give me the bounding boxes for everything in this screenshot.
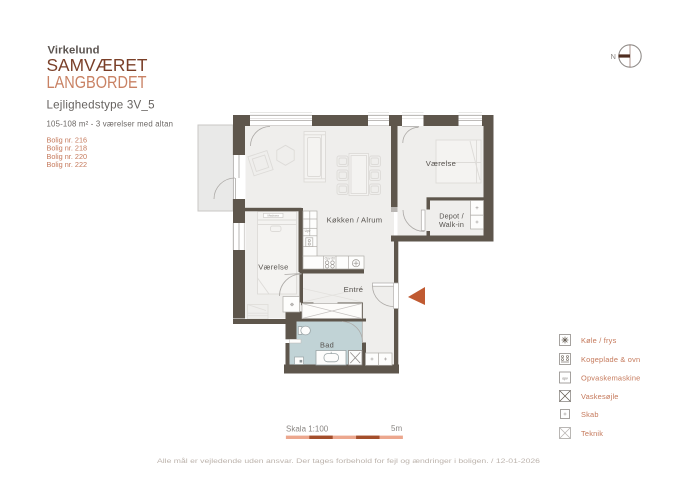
svg-text:Værelse: Værelse (258, 263, 288, 272)
svg-text:105-108 m² - 3 værelser med al: 105-108 m² - 3 værelser med altan (47, 120, 174, 129)
svg-text:Upv: Upv (305, 229, 311, 233)
svg-text:Alle mål er vejledende uden an: Alle mål er vejledende uden ansvar. Der … (157, 457, 540, 465)
svg-text:Madrass: Madrass (267, 214, 279, 218)
svg-text:Entré: Entré (344, 285, 364, 294)
svg-text:Køle / frys: Køle / frys (581, 336, 617, 345)
svg-text:Opvaskemaskine: Opvaskemaskine (581, 373, 641, 382)
svg-text:Skab: Skab (581, 410, 599, 419)
svg-text:Værelse: Værelse (426, 159, 456, 168)
svg-text:Bolig nr. 222: Bolig nr. 222 (47, 160, 88, 169)
svg-text:Skala 1:100: Skala 1:100 (286, 425, 329, 434)
svg-text:Walk-in: Walk-in (439, 220, 464, 229)
svg-text:opv: opv (562, 377, 568, 381)
svg-text:Kogeplade & ovn: Kogeplade & ovn (581, 355, 640, 364)
svg-text:5m: 5m (391, 424, 402, 433)
svg-text:Køkken / Alrum: Køkken / Alrum (327, 216, 383, 225)
svg-text:LANGBORDET: LANGBORDET (47, 72, 147, 92)
svg-text:Opv 60: Opv 60 (325, 257, 336, 261)
svg-text:N: N (611, 52, 616, 61)
svg-text:Lejlighedstype 3V_5: Lejlighedstype 3V_5 (47, 99, 155, 112)
svg-text:Teknik: Teknik (581, 429, 603, 438)
svg-text:Vaskesøjle: Vaskesøjle (581, 392, 619, 401)
svg-text:Bad: Bad (320, 341, 334, 350)
